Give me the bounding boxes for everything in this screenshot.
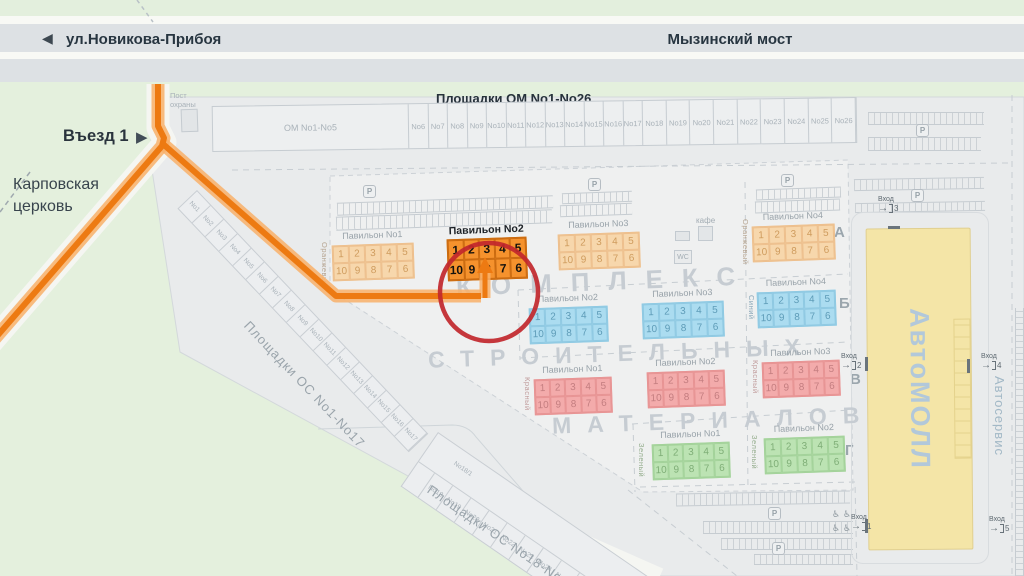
entrance-marker-3: Вход →3 [878, 196, 898, 213]
pavilion-cell: 8 [679, 389, 695, 407]
parking-stalls [703, 521, 853, 534]
pavilion-cell: 7 [607, 250, 624, 268]
pavilion-cell: 2 [550, 379, 566, 397]
pavilion-cell: 10 [333, 263, 350, 281]
pavilion-cell: 8 [561, 325, 577, 343]
strip-cell: No22 [737, 99, 761, 143]
door-mark [967, 359, 970, 373]
pavilion-cell: 3 [678, 372, 694, 390]
pavilion-cell: 8 [591, 251, 608, 269]
strip-cell-label: No25 [811, 116, 829, 125]
strip-cell-label: No19 [669, 118, 687, 127]
pavilion-cell: 10 [653, 462, 669, 480]
door-bracket-icon [889, 204, 893, 213]
pavilion-cell: 6 [714, 460, 730, 478]
pavilion-cell: 6 [820, 308, 836, 326]
pavilion-label: Павильон No2 [528, 292, 607, 306]
strip-cell-label: No11 [322, 341, 337, 357]
row-color-label-green: Зеленый [637, 443, 646, 477]
pavilion-cell: 9 [778, 379, 794, 397]
parking-icon: P [916, 124, 929, 137]
pavilion-cell: 5 [708, 371, 724, 389]
strip-cell-label: No10 [308, 327, 324, 343]
left-arrow-icon: ◀ [42, 30, 53, 47]
pavilion-cell: 4 [607, 233, 624, 251]
door-mark [865, 357, 868, 371]
parking-icon: P [911, 189, 924, 202]
door-mark [888, 226, 900, 229]
pavilion-label: Павильон No3 [557, 218, 639, 232]
pavilion-grid: 12345109876 [762, 360, 841, 399]
door-bracket-icon [852, 361, 856, 370]
pavilion-cell: 5 [819, 291, 835, 309]
automall-building: АвтоМОЛЛ [866, 228, 974, 551]
strip-cell: No6 [409, 104, 429, 148]
strip-cell-label: No24 [787, 116, 805, 125]
pavilion-cell: 10 [758, 310, 774, 328]
pavilion-cell: 3 [788, 292, 804, 310]
strip-cell-label: No4 [228, 243, 241, 256]
pavilion-cell: 1 [765, 439, 781, 457]
pavilion-cell: 7 [495, 258, 511, 279]
om-first-block: ОМ No1-No5 [213, 104, 410, 151]
pavilion-cell: 2 [545, 308, 561, 326]
pavilion-cell: 1 [758, 293, 774, 311]
row-color-label-orange: Оранжевый [741, 219, 750, 265]
arrow-right-icon: → [878, 205, 888, 213]
pavilion-cell: 10 [763, 380, 779, 398]
strip-cell: No17 [623, 101, 643, 145]
pavilion-cell: 10 [643, 321, 660, 339]
right-arrow-icon: ▶ [136, 128, 148, 146]
pavilion-cell: 10 [535, 397, 551, 415]
strip-cell-label: No9 [470, 121, 484, 130]
strip-cell-label: No21 [716, 117, 734, 126]
site-map: ◀ ул.Новикова-Прибоя Мызинский мост Въез… [0, 0, 1024, 576]
pavilion-grid: 12345109876 [757, 290, 837, 329]
pavilion-cell: 4 [494, 238, 510, 259]
om-cells: No6No7No8No9No10No11No12No13No14No15No16… [409, 98, 857, 148]
entrance-marker-5: Вход →5 [989, 516, 1009, 533]
pavilion-cell: 3 [793, 362, 809, 380]
pavilion-cell: 10 [448, 260, 464, 281]
pavilion-block: Павильон No112345109876 [533, 363, 613, 416]
pavilion-cell: 5 [595, 378, 611, 396]
cafe-building [698, 226, 713, 241]
arrow-right-icon: → [989, 525, 999, 533]
row-letter-a: А [834, 224, 845, 241]
pavilion-grid: 12345109876 [534, 377, 613, 416]
pavilion-block: Павильон No412345109876 [751, 210, 836, 263]
strip-cell: No26 [832, 98, 856, 142]
wheelchair-icon: ♿ [843, 509, 851, 520]
pavilion-cell: 6 [623, 250, 640, 268]
pavilion-cell: 5 [713, 443, 729, 461]
guard-post-label: Пост охраны [170, 92, 212, 109]
street-name-right: Мызинский мост [640, 31, 820, 48]
wheelchair-icon: ♿ [832, 523, 840, 534]
pavilion-cell: 6 [592, 324, 608, 342]
strip-cell: No25 [808, 98, 832, 142]
pavilion-cell: 9 [781, 455, 797, 473]
strip-cell-label: No16 [604, 119, 622, 128]
door-bracket-icon [862, 522, 866, 531]
row-letter-b: Б [839, 295, 850, 312]
strip-cell-label: No7 [269, 286, 282, 299]
pavilion-cell: 8 [789, 309, 805, 327]
entrance-1-label: Въезд 1 [63, 127, 129, 146]
pavilion-cell: 6 [511, 258, 527, 279]
pavilion-label: Павильон No2 [763, 422, 844, 436]
strip-cell-label: No17 [403, 427, 419, 443]
row-color-label-blue: Синий [747, 295, 756, 320]
pavilion-cell: 5 [591, 307, 607, 325]
pavilion-cell: 8 [566, 396, 582, 414]
pavilion-cell: 3 [785, 226, 802, 244]
pavilion-cell: 1 [653, 445, 669, 463]
pavilion-grid: 12345109876 [642, 301, 725, 340]
pavilion-cell: 2 [659, 303, 676, 321]
pavilion-cell: 2 [769, 226, 786, 244]
strip-cell: No8 [448, 103, 468, 147]
parking-stalls [721, 538, 853, 550]
parking-stalls [1015, 308, 1024, 576]
strip-cell-label: No6 [411, 122, 425, 131]
strip-cell-label: No14 [565, 119, 583, 128]
pavilion-cell: 8 [684, 461, 700, 479]
strip-cell: No23 [761, 99, 785, 143]
pavilion-cell: 2 [575, 234, 592, 252]
pavilion-cell: 4 [691, 302, 708, 320]
pavilion-label: Павильон No1 [533, 363, 611, 377]
pavilion-cell: 5 [397, 244, 414, 262]
pavilion-cell: 4 [698, 443, 714, 461]
pavilion-cell: 10 [530, 326, 546, 344]
pavilion-cell: 5 [623, 233, 640, 251]
pavilion-cell: 3 [675, 303, 692, 321]
pavilion-cell: 1 [753, 227, 770, 245]
pavilion-cell: 4 [381, 244, 398, 262]
pavilion-label: Павильон No4 [751, 210, 834, 224]
pavilion-grid: 12345109876 [652, 442, 731, 481]
church-label: Карповская церковь [13, 174, 135, 217]
pavilion-cell: 9 [668, 461, 684, 479]
strip-cell: No12 [526, 102, 546, 146]
pavilion-cell: 9 [546, 325, 562, 343]
parking-icon: P [781, 174, 794, 187]
pavilion-cell: 2 [663, 372, 679, 390]
entrance-marker-1: Вход →1 [851, 514, 871, 531]
strip-cell: No20 [690, 100, 714, 144]
strip-cell: No14 [565, 102, 585, 146]
kiosk-building [675, 231, 690, 241]
door-bracket-icon [1000, 524, 1004, 533]
pavilion-cell: 5 [823, 361, 839, 379]
pavilion-block: Павильон No112345109876 [651, 428, 731, 481]
pavilion-cell: 9 [550, 396, 566, 414]
strip-cell-label: No1 [188, 200, 201, 213]
pavilion-cell: 4 [576, 307, 592, 325]
pavilion-cell: 9 [575, 251, 592, 269]
strip-cell-label: No5 [242, 257, 255, 270]
pavilion-cell: 1 [559, 235, 576, 253]
pavilion-cell: 9 [769, 243, 786, 261]
pavilion-cell: 7 [691, 319, 708, 337]
pavilion-label: Павильон No3 [641, 287, 723, 301]
strip-cell: No10 [487, 103, 507, 147]
pavilion-cell: 9 [659, 320, 676, 338]
pavilion-label: Павильон No1 [331, 229, 413, 243]
strip-cell-label: No12 [335, 355, 351, 371]
pavilion-cell: 7 [802, 242, 819, 260]
pavilion-cell: 7 [576, 324, 592, 342]
pavilion-cell: 2 [780, 438, 796, 456]
arrow-right-icon: → [981, 362, 991, 370]
pavilion-grid: 12345109876 [558, 232, 641, 271]
pavilion-label: Павильон No2 [646, 356, 724, 370]
parking-icon: P [363, 185, 376, 198]
pavilion-cell: 3 [560, 308, 576, 326]
pavilion-block: Павильон No212345109876 [528, 292, 609, 345]
pavilion-block: Павильон No212345109876 [646, 356, 726, 409]
om-strip: ОМ No1-No5 No6No7No8No9No10No11No12No13N… [212, 97, 858, 152]
pavilion-cell: 5 [707, 302, 724, 320]
pavilion-grid: 12345109876 [529, 306, 609, 345]
arrow-right-icon: → [841, 362, 851, 370]
pavilion-cell: 8 [479, 259, 495, 280]
entrance-marker-4: Вход →4 [981, 353, 1001, 370]
pavilion-grid: 12345109876 [332, 243, 415, 282]
parking-stalls [754, 554, 853, 565]
pavilion-cell: 6 [397, 261, 414, 279]
pavilion-cell: 1 [448, 240, 464, 261]
pavilion-cell: 8 [797, 455, 813, 473]
pavilion-cell: 8 [365, 262, 382, 280]
pavilion-cell: 1 [530, 309, 546, 327]
strip-cell-label: No13 [546, 120, 564, 129]
parking-stalls [868, 137, 981, 151]
pavilion-cell: 7 [804, 308, 820, 326]
pavilion-cell: 6 [707, 319, 724, 337]
os-bottom-corner-cell: No18/1 [452, 460, 473, 478]
strip-cell: No7 [428, 104, 448, 148]
strip-cell-label: No22 [740, 117, 758, 126]
strip-cell: No11 [506, 103, 526, 147]
pavilion-grid: 12345109876 [764, 436, 846, 475]
strip-cell-label: No12 [526, 120, 544, 129]
strip-cell-label: No7 [431, 121, 445, 130]
strip-cell-label: No15 [585, 119, 603, 128]
pavilion-block: Павильон No412345109876 [756, 276, 837, 329]
pavilion-cell: 3 [365, 245, 382, 263]
pavilion-cell: 2 [668, 444, 684, 462]
row-color-label-green: Зеленый [750, 435, 759, 469]
strip-cell: No15 [584, 102, 604, 146]
pavilion-cell: 5 [828, 437, 844, 455]
autoservice-label: Автосервис [992, 376, 1007, 456]
strip-cell-label: No10 [487, 120, 505, 129]
strip-cell-label: No8 [450, 121, 464, 130]
parking-icon: P [588, 178, 601, 191]
pavilion-block: Павильон No312345109876 [761, 346, 841, 399]
pavilion-cell: 9 [464, 259, 480, 280]
pavilion-cell: 4 [808, 361, 824, 379]
strip-cell: No21 [714, 100, 738, 144]
pavilion-cell: 4 [580, 378, 596, 396]
pavilion-cell: 8 [675, 320, 692, 338]
wheelchair-icon: ♿ [843, 523, 851, 534]
pavilion-cell: 1 [333, 246, 350, 264]
pavilion-cell: 9 [663, 389, 679, 407]
strip-cell-label: No3 [215, 229, 228, 242]
row-color-label-orange: Оранжевый [320, 242, 329, 288]
pavilion-cell: 7 [813, 454, 829, 472]
pavilion-block: Павильон No312345109876 [557, 218, 641, 271]
pavilion-cell: 4 [812, 437, 828, 455]
strip-cell-label: No16 [389, 412, 405, 428]
pavilion-cell: 8 [786, 243, 803, 261]
parking-stalls [676, 490, 850, 506]
pavilion-cell: 4 [693, 371, 709, 389]
pavilion-cell: 2 [349, 245, 366, 263]
pavilion-cell: 7 [694, 388, 710, 406]
strip-cell-label: No15 [376, 398, 392, 414]
pavilion-cell: 10 [753, 244, 770, 262]
pavilion-cell: 3 [796, 438, 812, 456]
row-color-label-red: Красный [751, 360, 760, 394]
pavilion-block: Павильон No112345109876 [331, 229, 415, 282]
pavilion-cell: 6 [824, 378, 840, 396]
strip-cell: No18 [643, 101, 667, 145]
cafe-label: кафе [696, 216, 715, 225]
pavilion-cell: 2 [778, 362, 794, 380]
strip-cell-label: No11 [507, 120, 524, 129]
strip-cell-label: No8 [282, 300, 295, 313]
automall-label: АвтоМОЛЛ [903, 308, 935, 470]
parking-icon: P [772, 542, 785, 555]
pavilion-cell: 2 [463, 239, 479, 260]
strip-cell: No19 [666, 100, 690, 144]
pavilion-cell: 9 [349, 262, 366, 280]
pavilion-label: Павильон No2 [446, 223, 526, 237]
entrance-marker-2: Вход →2 [841, 353, 861, 370]
pavilion-highlighted: Павильон No212345109876 [446, 223, 528, 282]
pavilion-cell: 1 [648, 373, 664, 391]
wheelchair-icon: ♿ [832, 509, 840, 520]
pavilion-cell: 6 [709, 388, 725, 406]
pavilion-cell: 7 [809, 378, 825, 396]
pavilion-cell: 7 [381, 261, 398, 279]
pavilion-cell: 7 [699, 460, 715, 478]
pavilion-cell: 10 [765, 456, 781, 474]
strip-cell-label: No6 [255, 271, 268, 284]
strip-cell-label: No14 [362, 384, 378, 400]
strip-cell-label: No18 [645, 118, 663, 127]
strip-cell: No24 [785, 99, 809, 143]
pavilion-grid: 12345109876 [447, 237, 528, 282]
pavilion-label: Павильон No1 [651, 428, 729, 442]
pavilion-cell: 1 [643, 304, 660, 322]
pavilion-block: Павильон No312345109876 [641, 287, 725, 340]
guard-post-building [181, 109, 199, 133]
pavilion-cell: 3 [683, 444, 699, 462]
pavilion-cell: 3 [479, 239, 495, 260]
pavilion-cell: 8 [794, 379, 810, 397]
pavilion-block: Павильон No212345109876 [763, 422, 846, 475]
pavilion-cell: 5 [817, 225, 834, 243]
strip-cell-label: No2 [201, 214, 214, 227]
pavilion-cell: 3 [591, 234, 608, 252]
parking-icon: P [768, 507, 781, 520]
pavilion-grid: 12345109876 [752, 224, 836, 263]
parking-stalls [560, 203, 632, 218]
pavilion-grid: 12345109876 [647, 370, 726, 409]
pavilion-cell: 7 [581, 395, 597, 413]
pavilion-cell: 1 [535, 380, 551, 398]
strip-cell-label: No20 [693, 118, 711, 127]
pavilion-cell: 10 [559, 252, 576, 270]
strip-cell: No13 [545, 102, 565, 146]
pavilion-cell: 4 [804, 291, 820, 309]
pavilion-cell: 6 [828, 454, 844, 472]
pavilion-cell: 5 [510, 238, 526, 259]
pavilion-cell: 6 [596, 395, 612, 413]
strip-cell-label: No13 [349, 370, 365, 386]
pavilion-label: Павильон No4 [756, 276, 835, 290]
pavilion-cell: 3 [565, 379, 581, 397]
strip-cell-label: No23 [764, 117, 782, 126]
row-color-label-red: Красный [523, 377, 532, 411]
strip-cell: No16 [604, 101, 624, 145]
street-name-left: ул.Новикова-Прибоя [66, 31, 221, 48]
pavilion-cell: 10 [648, 390, 664, 408]
pavilion-label: Павильон No3 [761, 346, 839, 360]
pavilion-cell: 9 [774, 309, 790, 327]
strip-cell: No9 [467, 103, 487, 147]
arrow-right-icon: → [851, 523, 861, 531]
pavilion-cell: 2 [773, 292, 789, 310]
strip-cell-label: No26 [835, 116, 853, 125]
strip-cell-label: No9 [296, 314, 309, 327]
door-bracket-icon [992, 361, 996, 370]
strip-cell-label: No17 [624, 119, 642, 128]
pavilion-cell: 4 [801, 225, 818, 243]
pavilion-cell: 6 [818, 242, 835, 260]
pavilion-cell: 1 [763, 363, 779, 381]
